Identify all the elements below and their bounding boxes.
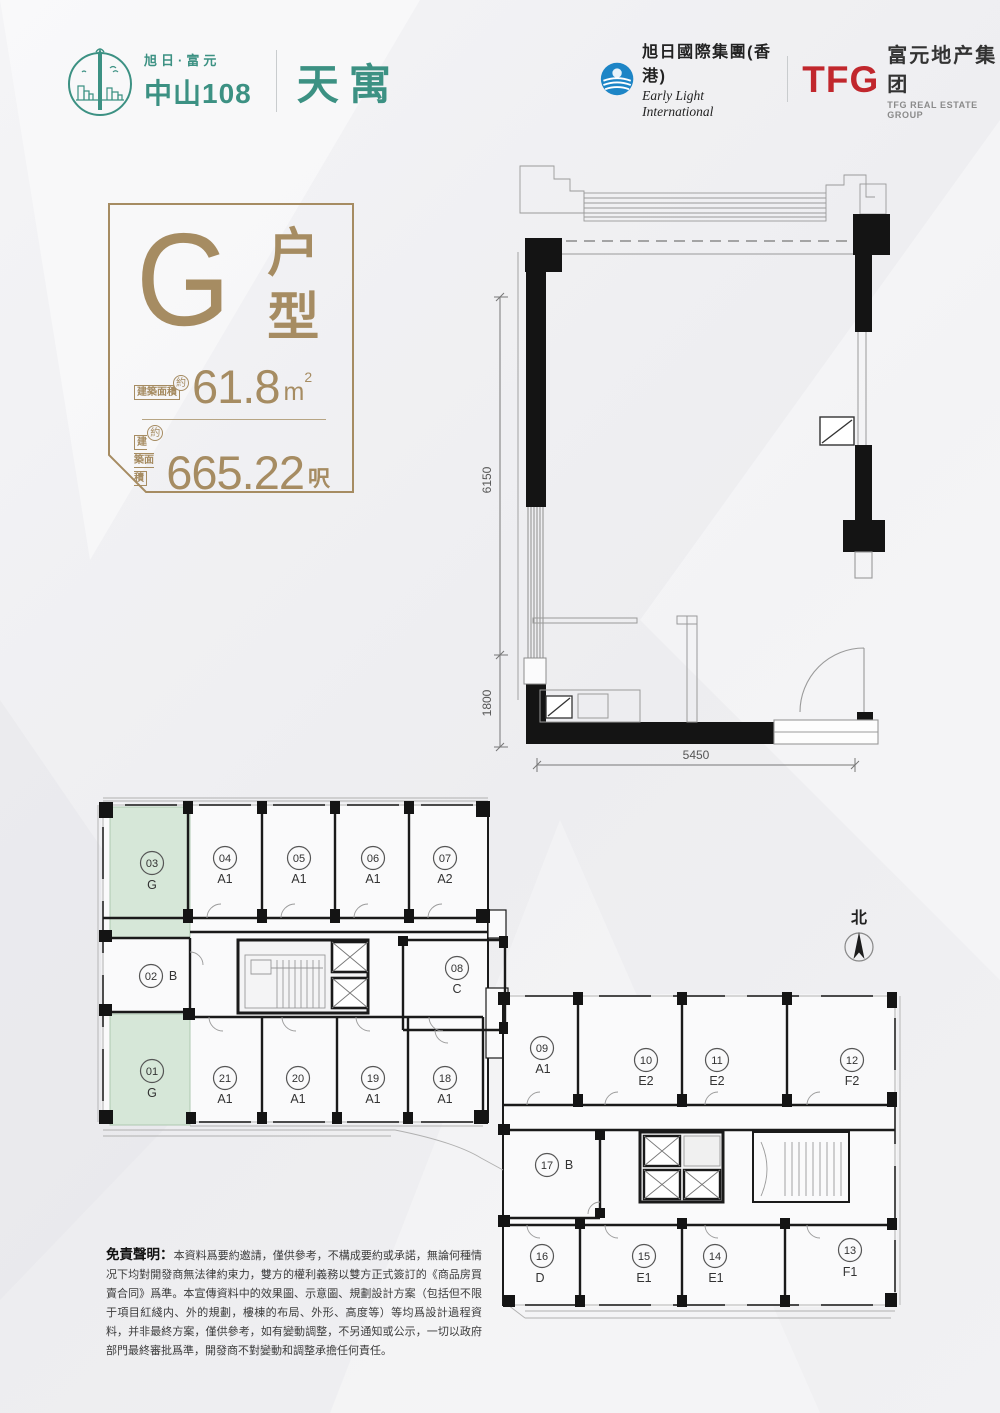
svg-text:F1: F1 [843,1265,858,1279]
svg-text:14: 14 [709,1251,721,1263]
svg-text:11: 11 [711,1055,722,1067]
left-core [238,940,368,1013]
ac-unit [820,417,854,445]
svg-text:16: 16 [536,1251,548,1263]
card-divider [142,419,326,420]
svg-text:A1: A1 [365,1092,380,1106]
walls [525,214,890,744]
early-light-cn: 旭日國際集團(香港) [642,38,773,86]
svg-text:B: B [169,969,177,983]
svg-text:G: G [147,878,157,892]
header-divider-2 [787,56,788,102]
dim-1800: 1800 [480,689,494,716]
svg-text:B: B [565,1158,573,1172]
product-name: 天寓 [297,51,401,112]
svg-text:A1: A1 [365,872,380,886]
tfg-abbr: TFG [802,61,879,98]
louver-window [524,507,546,684]
svg-text:08: 08 [451,963,463,975]
disclaimer-body: 本資料爲要約邀請，僅供參考，不構成要約或承諾，無論何種情况下均對開發商無法律約束… [106,1250,482,1357]
disclaimer: 免責聲明：本資料爲要約邀請，僅供參考，不構成要約或承諾，無論何種情况下均對開發商… [106,1243,482,1361]
brochure-page: 旭日·富元 中山108 天寓 旭日國際集團(香港) Early Light In… [0,0,1000,1413]
area-row-sqm: 建築面積 約 61.8 m2 [134,367,330,407]
area-unit-sqft: 呎 [308,468,330,490]
svg-text:12: 12 [846,1055,858,1067]
area-value-sqm: 61.8 [192,367,279,407]
svg-text:A1: A1 [217,872,232,886]
svg-text:15: 15 [638,1251,650,1263]
svg-text:18: 18 [439,1073,451,1085]
early-light-en: Early Light International [642,88,773,120]
svg-text:C: C [452,982,461,996]
corporate-logos: 旭日國際集團(香港) Early Light International TFG… [600,38,1000,120]
svg-text:E1: E1 [636,1271,651,1285]
tfg-cn: 富元地产集团 [887,39,1000,97]
svg-text:13: 13 [844,1245,856,1257]
area-row-sqft: 建築面積 約 665.22 呎 [134,432,330,493]
svg-text:G: G [147,1086,157,1100]
area-badge: 建築面積 [134,435,154,486]
dim-6150: 6150 [480,466,494,493]
svg-text:20: 20 [292,1073,304,1085]
svg-text:09: 09 [536,1043,548,1055]
approx-badge: 約 [147,425,163,441]
unit-g-floorplan: 6150 1800 5450 [478,148,970,793]
unit-type-letter: G [136,211,230,353]
svg-text:02: 02 [145,971,157,983]
right-glazing [858,332,866,445]
svg-text:A1: A1 [535,1062,550,1076]
unit-type-label: 户型 [251,225,326,353]
brand-lockup: 旭日·富元 中山108 天寓 [66,44,401,118]
svg-text:A1: A1 [217,1092,232,1106]
svg-text:04: 04 [219,853,231,865]
svg-text:A1: A1 [290,1092,305,1106]
svg-text:10: 10 [640,1055,652,1067]
zhongshan108-logo-icon [66,44,134,118]
svg-text:E2: E2 [638,1074,653,1088]
svg-text:01: 01 [146,1066,158,1078]
svg-text:E2: E2 [709,1074,724,1088]
svg-text:A1: A1 [437,1092,452,1106]
svg-text:A2: A2 [437,872,452,886]
svg-text:F2: F2 [845,1074,860,1088]
header-divider [276,50,277,112]
early-light-logo-icon [600,59,634,99]
svg-text:A1: A1 [291,872,306,886]
svg-text:D: D [535,1271,544,1285]
unit-type-card: G 户型 建築面積 約 61.8 m2 建築面積 約 665.22 呎 [108,203,354,493]
svg-text:17: 17 [541,1160,553,1172]
brand-title: 中山108 [144,72,252,112]
svg-text:07: 07 [439,853,451,865]
approx-badge: 約 [173,375,189,391]
disclaimer-heading: 免責聲明： [106,1247,174,1262]
brand-pre-title: 旭日·富元 [144,50,252,69]
svg-text:05: 05 [293,853,305,865]
tfg-en: TFG REAL ESTATE GROUP [887,100,1000,120]
area-value-sqft: 665.22 [166,453,304,493]
svg-text:E1: E1 [708,1271,723,1285]
area-badge: 建築面積 [134,385,180,400]
area-unit-sqm: m2 [283,370,312,405]
dim-5450: 5450 [683,748,710,762]
svg-text:21: 21 [219,1073,231,1085]
svg-text:06: 06 [367,853,379,865]
svg-text:03: 03 [146,858,158,870]
svg-text:19: 19 [367,1073,379,1085]
kitchen-sink [546,696,572,718]
